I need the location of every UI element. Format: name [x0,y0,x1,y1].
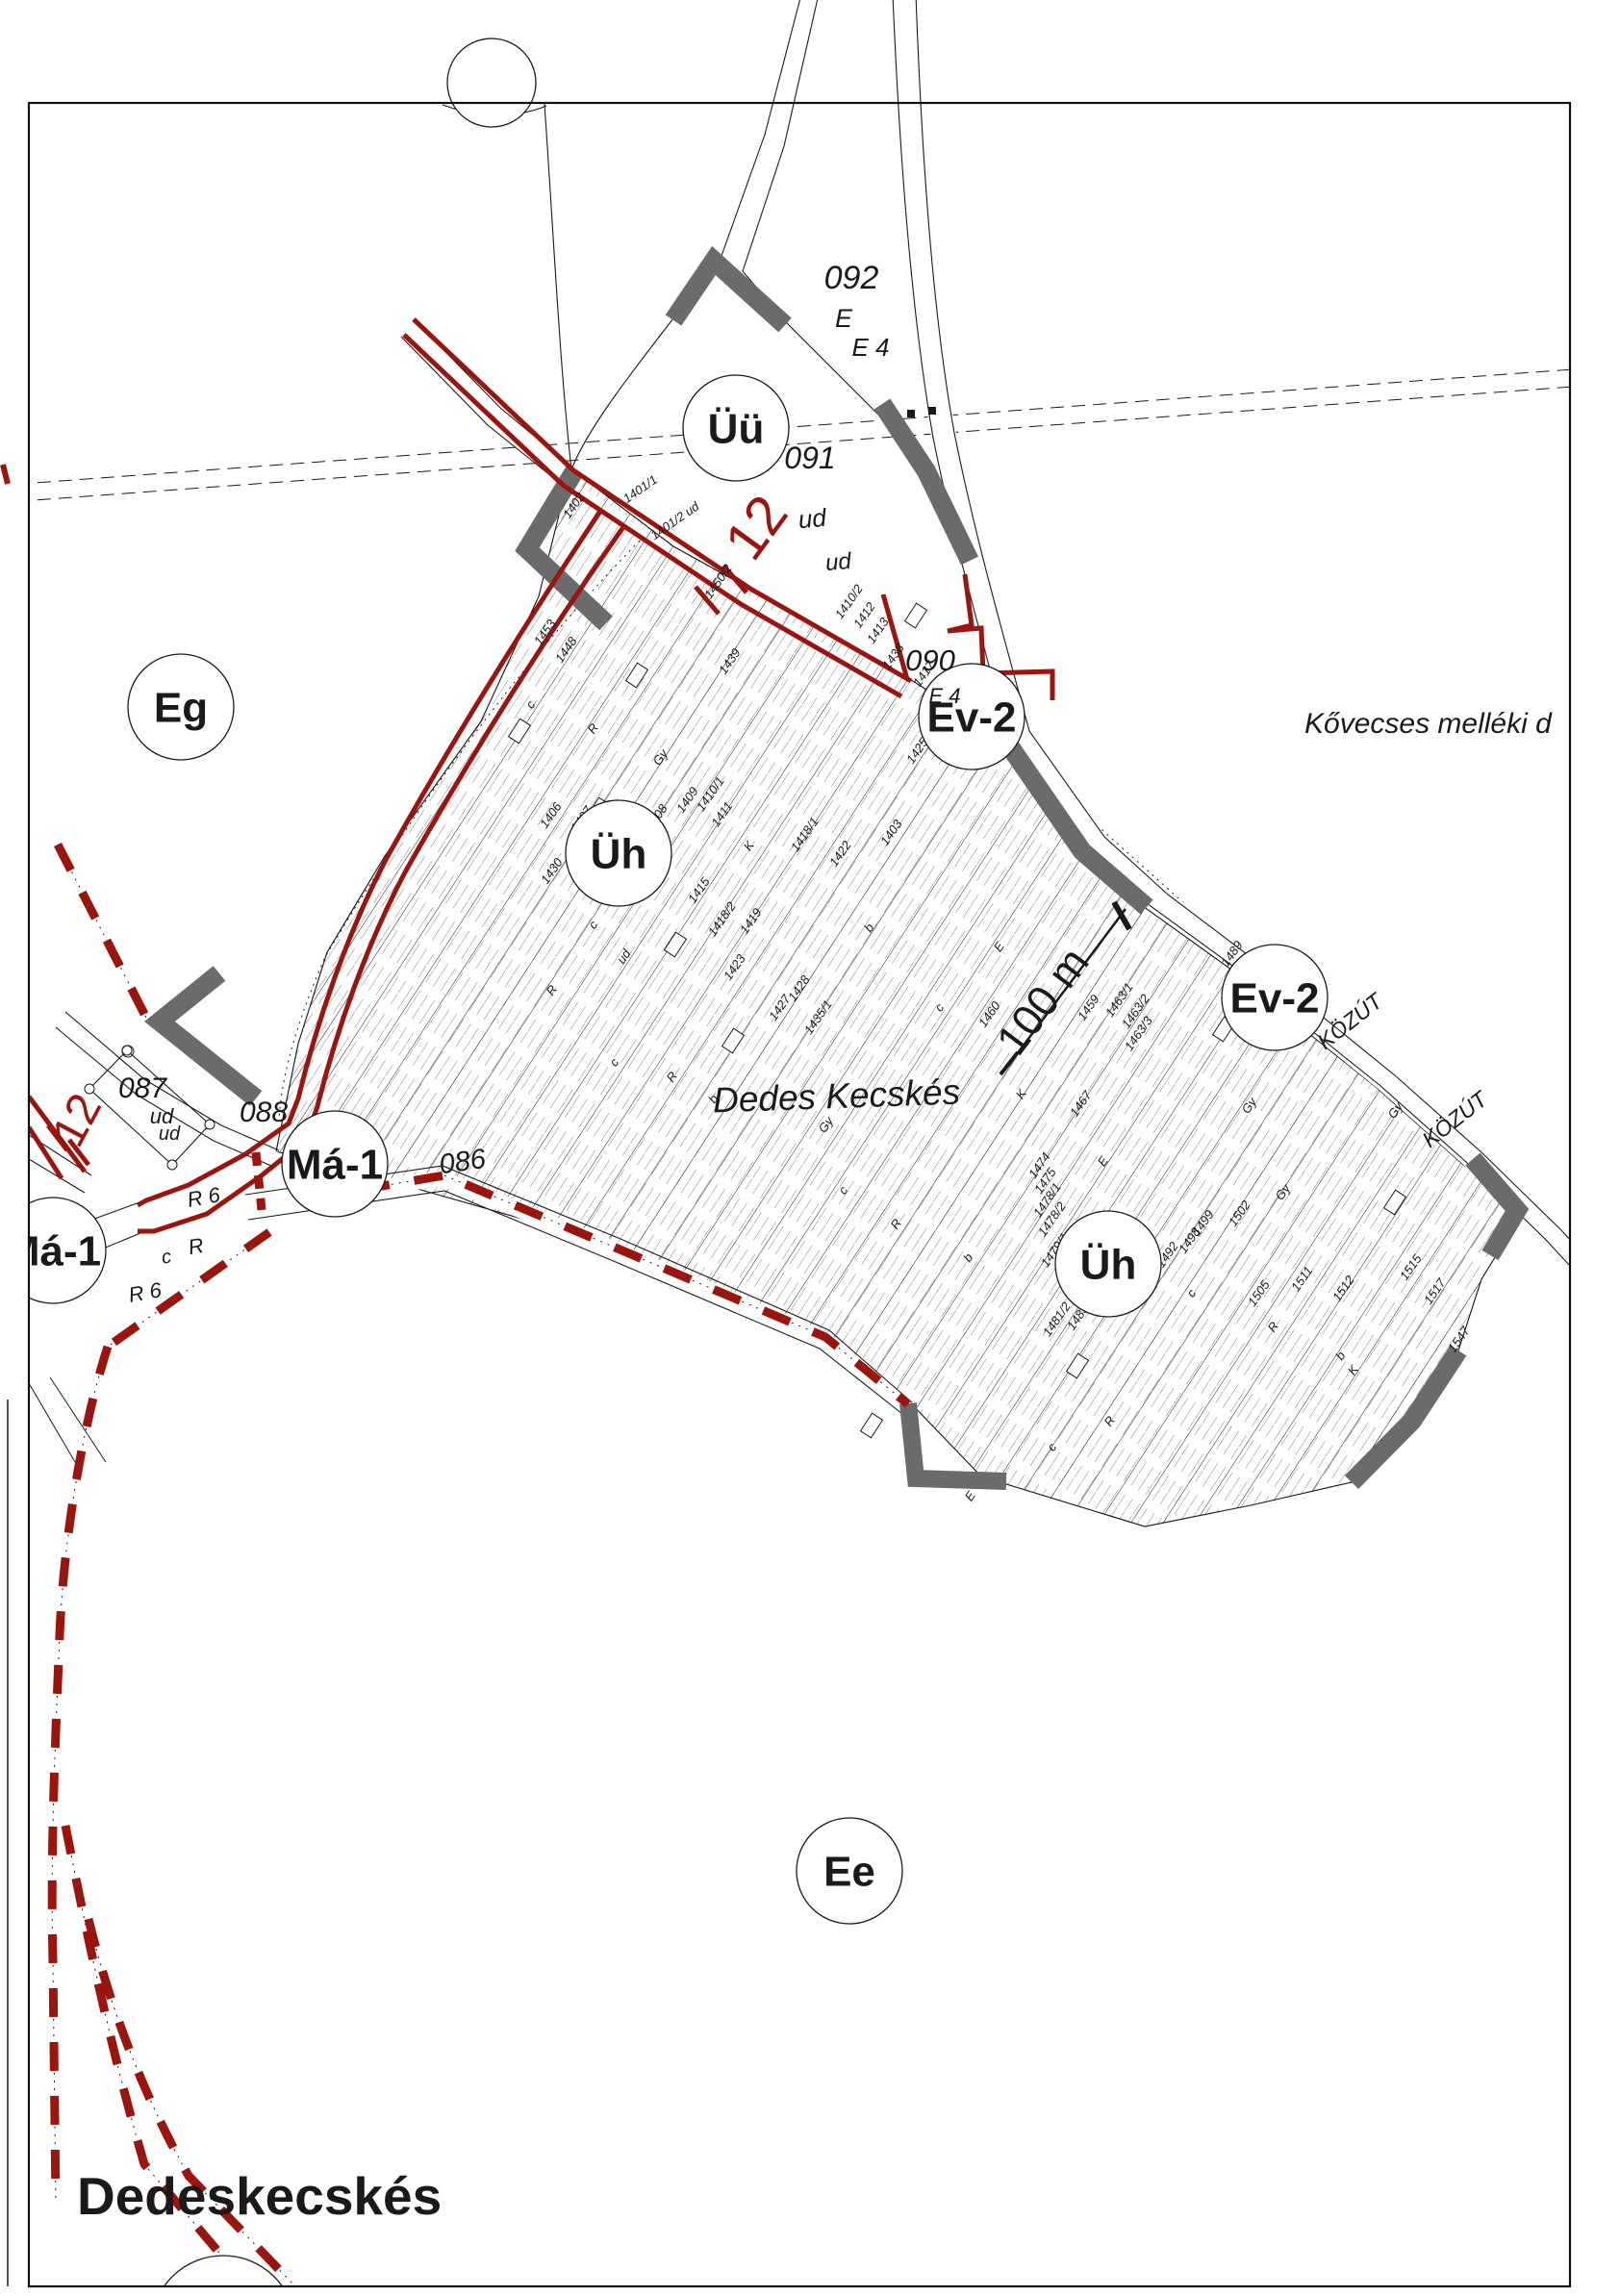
zone-circle[interactable] [447,38,536,127]
area-label: 086 [438,1144,489,1181]
area-label: 092 [824,260,879,296]
area-label: 091 [784,441,835,475]
zone-label: Üh [591,830,647,877]
sheet-title: Dedeskecskés [77,2166,442,2226]
map-sheet: 14021401/11401/2 ud140314061407140814091… [0,0,1620,2296]
area-label: ud [159,1123,181,1145]
zone-label: Üü [708,405,765,452]
zone-label: Üh [1080,1241,1137,1288]
area-label: ud [824,548,853,576]
area-label: ud [797,503,829,535]
area-label: 088 [240,1097,288,1128]
zone-label: Ev-2 [1230,974,1320,1022]
area-label: Kővecses melléki d [1304,708,1553,740]
area-label: E 4 [928,684,960,708]
zone-label: Eg [154,684,208,731]
area-label: 090 [905,643,955,677]
area-label: E 4 [851,333,889,362]
zoning-map-canvas[interactable]: 14021401/11401/2 ud140314061407140814091… [0,0,1620,2296]
area-label: 087 [118,1072,167,1104]
zone-label: Má-1 [287,1141,383,1188]
zone-label: Ee [823,1848,875,1895]
area-label: E [835,304,853,333]
